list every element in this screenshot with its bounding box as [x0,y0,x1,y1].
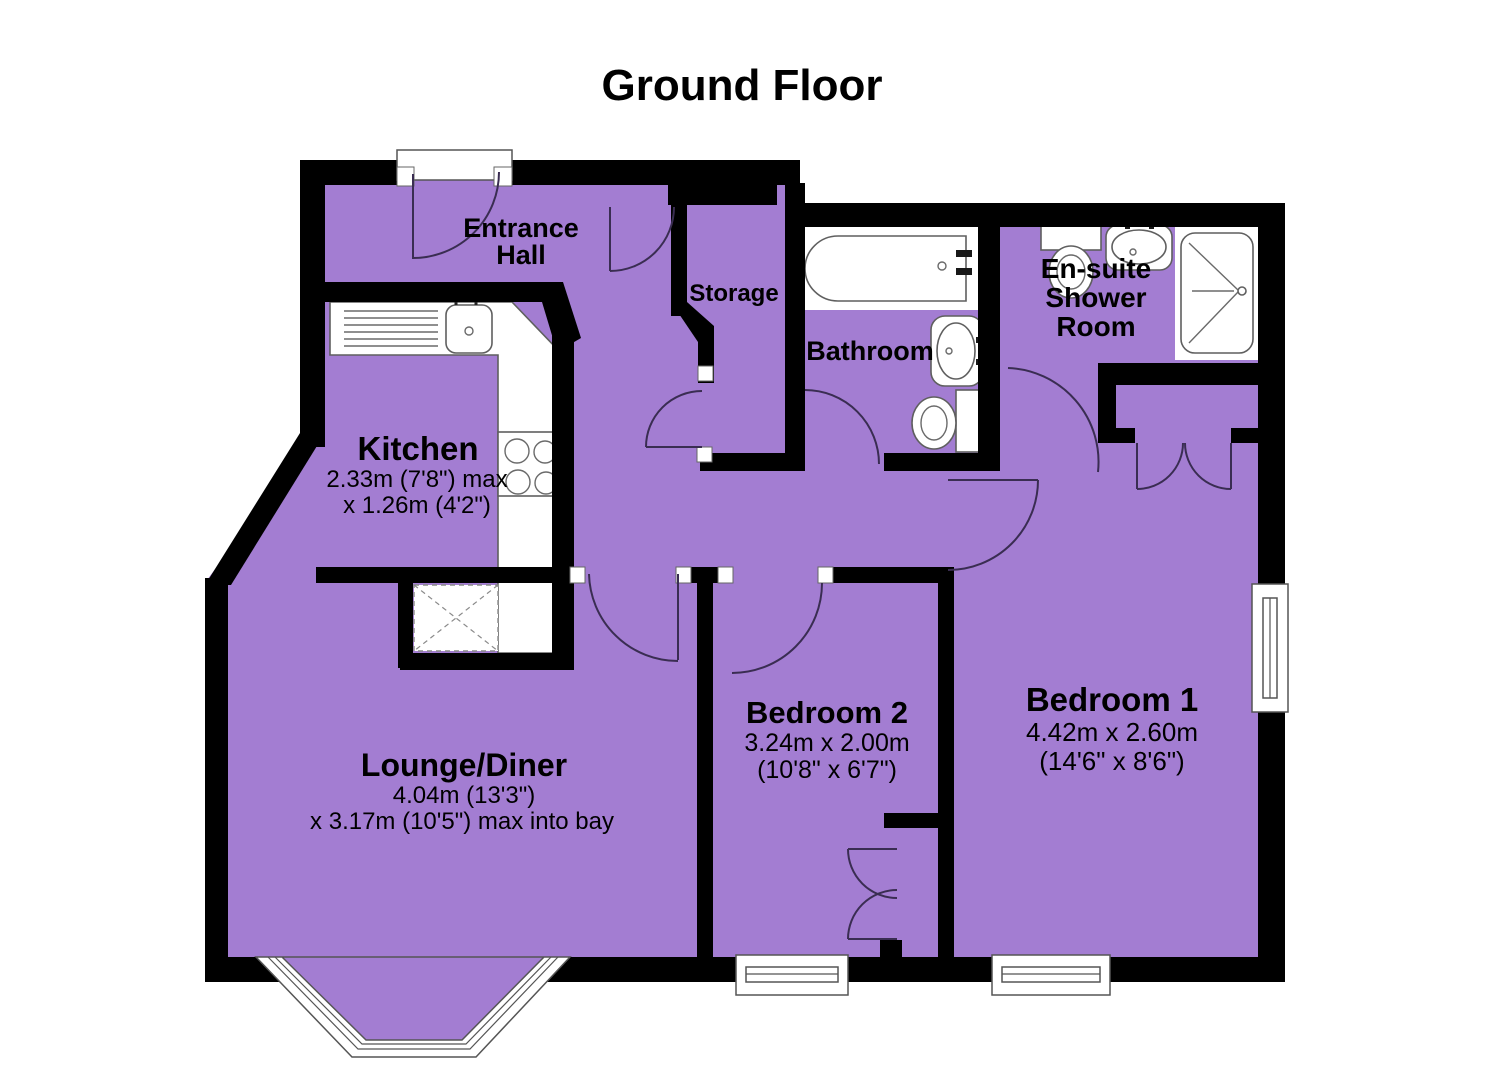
label-kitchen-dim1: 2.33m (7'8") max [326,466,507,493]
label-ensuite-3: Room [1056,311,1135,342]
label-bedroom2-dim2: (10'8" x 6'7") [757,756,897,784]
shower-icon [1175,227,1258,360]
label-bathroom: Bathroom [806,336,934,366]
floorplan-canvas: Ground Floor Entrance Hall Storage Bathr… [0,0,1485,1080]
label-entrance-hall-1: Entrance [463,213,579,243]
label-ensuite-2: Shower [1045,282,1146,313]
bedroom1-window-icon [992,955,1110,995]
label-storage: Storage [689,280,778,307]
label-bedroom1: Bedroom 1 [1026,681,1198,718]
label-lounge-dim2: x 3.17m (10'5") max into bay [310,808,614,835]
label-lounge-dim1: 4.04m (13'3") [393,782,536,809]
label-kitchen: Kitchen [357,430,478,467]
label-bedroom1-dim2: (14'6" x 8'6") [1039,746,1184,776]
bath-icon [785,227,978,310]
label-bedroom1-dim1: 4.42m x 2.60m [1026,717,1198,747]
label-lounge: Lounge/Diner [361,747,567,783]
label-bedroom2: Bedroom 2 [746,695,908,730]
label-kitchen-dim2: x 1.26m (4'2") [343,492,491,519]
page-title: Ground Floor [601,61,882,110]
floorplan-page: Ground Floor Entrance Hall Storage Bathr… [0,0,1485,1080]
entrance-door-recess [397,150,512,186]
label-entrance-hall-2: Hall [496,240,546,270]
bedroom2-window-icon [736,955,848,995]
label-ensuite-1: En-suite [1041,253,1151,284]
side-window-icon [1252,584,1288,712]
label-bedroom2-dim1: 3.24m x 2.00m [744,729,909,757]
appliance-icon [414,585,498,651]
